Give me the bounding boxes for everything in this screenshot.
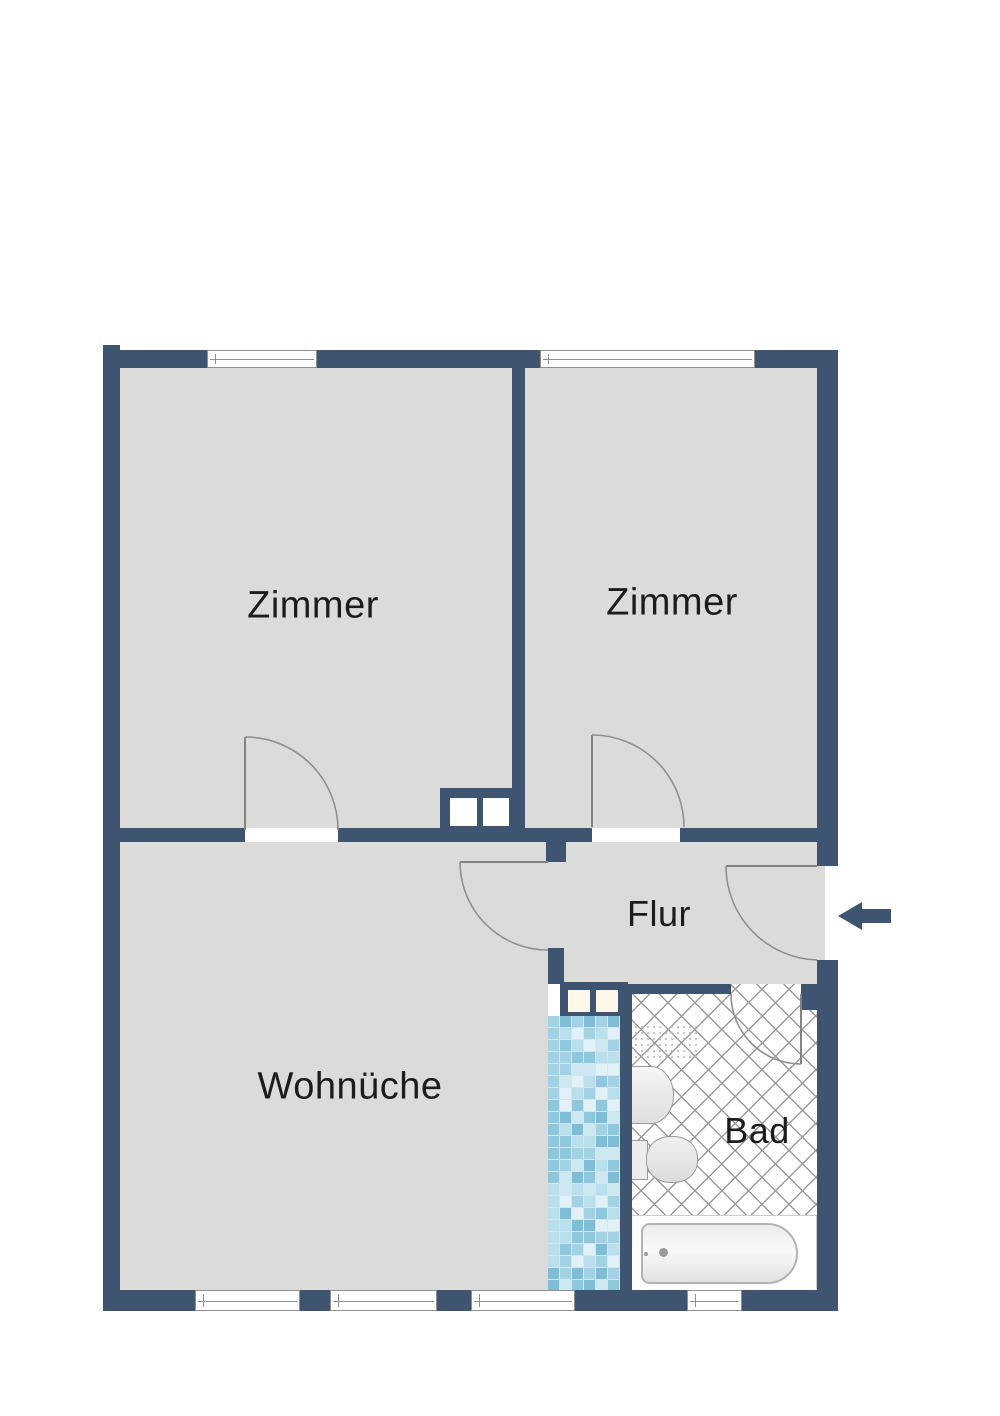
mosaic-tile <box>560 1220 571 1231</box>
wall-right <box>817 960 838 1311</box>
mosaic-tile <box>560 1136 571 1147</box>
mosaic-tile <box>608 1208 619 1219</box>
mosaic-tile <box>548 1280 559 1290</box>
mosaic-tile <box>596 1268 607 1279</box>
mosaic-tile <box>572 1268 583 1279</box>
room-label-bad: Bad <box>724 1110 790 1152</box>
mosaic-tile <box>572 1184 583 1195</box>
mosaic-tile <box>584 1208 595 1219</box>
toilet-bowl <box>646 1136 698 1183</box>
wall-main-horizontal <box>338 828 592 842</box>
mosaic-tile <box>608 1184 619 1195</box>
mosaic-tile <box>596 1112 607 1123</box>
wall-main-horizontal <box>120 828 245 842</box>
mosaic-tile <box>548 1220 559 1231</box>
wall-top <box>103 350 207 368</box>
mosaic-tile <box>548 1064 559 1075</box>
wall-bottom <box>300 1290 330 1311</box>
mosaic-tile <box>560 1028 571 1039</box>
mosaic-tile <box>596 1160 607 1171</box>
mosaic-tile <box>608 1268 619 1279</box>
mosaic-tile <box>560 1148 571 1159</box>
mosaic-tile <box>572 1256 583 1267</box>
mosaic-tile <box>608 1160 619 1171</box>
mosaic-tile <box>596 1028 607 1039</box>
entrance-threshold <box>817 866 825 960</box>
mosaic-tile <box>596 1148 607 1159</box>
mosaic-tile <box>608 1148 619 1159</box>
mosaic-tile <box>548 1040 559 1051</box>
mosaic-tile <box>596 1196 607 1207</box>
mosaic-tile <box>548 1016 559 1027</box>
room-label-flur: Flur <box>627 893 691 935</box>
mosaic-tile <box>596 1076 607 1087</box>
mosaic-tile <box>548 1172 559 1183</box>
mosaic-tile <box>572 1136 583 1147</box>
mosaic-tile <box>608 1028 619 1039</box>
mosaic-tile <box>584 1088 595 1099</box>
mosaic-tile <box>584 1196 595 1207</box>
mosaic-tile <box>560 1052 571 1063</box>
wall-bottom <box>437 1290 471 1311</box>
mosaic-tile <box>548 1268 559 1279</box>
mosaic-tile <box>584 1076 595 1087</box>
mosaic-tile <box>560 1232 571 1243</box>
mosaic-tile <box>572 1028 583 1039</box>
mosaic-tile <box>572 1016 583 1027</box>
mosaic-tile <box>596 1040 607 1051</box>
mosaic-tile <box>608 1088 619 1099</box>
mosaic-tile <box>584 1160 595 1171</box>
mosaic-tile <box>560 1268 571 1279</box>
mosaic-tile <box>560 1280 571 1290</box>
mosaic-tile <box>560 1244 571 1255</box>
mosaic-tile <box>572 1100 583 1111</box>
bathtub-drain <box>644 1252 648 1256</box>
mosaic-tile <box>596 1208 607 1219</box>
mosaic-tile <box>584 1040 595 1051</box>
mosaic-tile <box>560 1016 571 1027</box>
mosaic-tile <box>608 1064 619 1075</box>
mosaic-tile <box>548 1160 559 1171</box>
mosaic-tile <box>548 1124 559 1135</box>
mosaic-tile <box>608 1040 619 1051</box>
wall-flur-stub <box>546 842 566 862</box>
mosaic-tile <box>560 1124 571 1135</box>
mosaic-tile <box>560 1076 571 1087</box>
mosaic-tile <box>596 1136 607 1147</box>
mosaic-tile <box>596 1256 607 1267</box>
mosaic-tile <box>560 1112 571 1123</box>
mosaic-tile <box>548 1136 559 1147</box>
mosaic-tile <box>608 1232 619 1243</box>
mosaic-tile <box>608 1280 619 1290</box>
room-label-zimmer-left: Zimmer <box>247 585 379 628</box>
mosaic-tile <box>596 1064 607 1075</box>
mosaic-tile <box>548 1208 559 1219</box>
mosaic-tile <box>548 1076 559 1087</box>
mosaic-tile <box>584 1172 595 1183</box>
mosaic-tile <box>548 1184 559 1195</box>
mosaic-tile <box>572 1160 583 1171</box>
bathtub-faucet <box>659 1248 668 1257</box>
wall-bottom <box>575 1290 687 1311</box>
mosaic-tile <box>584 1028 595 1039</box>
mosaic-tile <box>608 1172 619 1183</box>
mosaic-tile <box>608 1052 619 1063</box>
window <box>471 1290 575 1311</box>
room-label-wohnkueche: Wohnüche <box>258 1066 443 1109</box>
mosaic-tile <box>608 1244 619 1255</box>
mosaic-tile <box>572 1040 583 1051</box>
wall-bottom <box>742 1290 838 1311</box>
mosaic-tiles <box>548 1016 620 1290</box>
mosaic-tile <box>596 1088 607 1099</box>
mosaic-tile <box>596 1220 607 1231</box>
mosaic-tile <box>584 1064 595 1075</box>
mosaic-tile <box>572 1148 583 1159</box>
mosaic-tile <box>572 1208 583 1219</box>
wall-between-zimmer <box>512 368 525 842</box>
mosaic-tile <box>572 1124 583 1135</box>
window <box>540 350 755 368</box>
mosaic-tile <box>572 1196 583 1207</box>
wall-right <box>817 350 838 866</box>
window <box>687 1290 742 1311</box>
mosaic-tile <box>560 1172 571 1183</box>
wall-bad-door-stub <box>801 984 817 1010</box>
mosaic-tile <box>584 1100 595 1111</box>
mosaic-tile <box>572 1064 583 1075</box>
mosaic-tile <box>548 1028 559 1039</box>
mosaic-tile <box>596 1244 607 1255</box>
wall-bottom <box>103 1290 195 1311</box>
mosaic-tile <box>572 1076 583 1087</box>
mosaic-tile <box>560 1256 571 1267</box>
mosaic-tile <box>548 1148 559 1159</box>
window <box>207 350 317 368</box>
mosaic-tile <box>584 1148 595 1159</box>
wall-flur-left <box>548 948 564 984</box>
mosaic-tile <box>572 1220 583 1231</box>
mosaic-tile <box>608 1256 619 1267</box>
wall-left <box>103 345 120 1311</box>
wall-main-horizontal <box>680 828 817 842</box>
mosaic-tile <box>572 1088 583 1099</box>
mosaic-tile <box>584 1016 595 1027</box>
mosaic-tile <box>572 1052 583 1063</box>
window <box>330 1290 437 1311</box>
wall-bad-left <box>620 994 632 1290</box>
mosaic-tile <box>596 1184 607 1195</box>
mosaic-tile <box>560 1040 571 1051</box>
bad-texture-patch <box>633 1024 699 1062</box>
mosaic-tile <box>548 1100 559 1111</box>
mosaic-tile <box>560 1208 571 1219</box>
mosaic-tile <box>548 1052 559 1063</box>
mosaic-tile <box>584 1244 595 1255</box>
mosaic-tile <box>608 1016 619 1027</box>
mosaic-tile <box>548 1244 559 1255</box>
mosaic-tile <box>608 1220 619 1231</box>
mosaic-tile <box>560 1196 571 1207</box>
mosaic-tile <box>560 1100 571 1111</box>
window <box>195 1290 300 1311</box>
mosaic-tile <box>548 1232 559 1243</box>
mosaic-tile <box>548 1196 559 1207</box>
mosaic-tile <box>548 1256 559 1267</box>
mosaic-tile <box>560 1064 571 1075</box>
mosaic-tile <box>584 1124 595 1135</box>
mosaic-tile <box>596 1016 607 1027</box>
mosaic-tile <box>596 1124 607 1135</box>
mosaic-tile <box>584 1256 595 1267</box>
wall-flur-bad <box>628 984 731 994</box>
shaft-lower-cell <box>568 990 590 1012</box>
mosaic-tile <box>548 1112 559 1123</box>
mosaic-tile <box>596 1172 607 1183</box>
shaft-upper-cell <box>483 798 509 826</box>
mosaic-tile <box>572 1232 583 1243</box>
mosaic-tile <box>560 1088 571 1099</box>
mosaic-tile <box>608 1124 619 1135</box>
mosaic-tile <box>572 1112 583 1123</box>
mosaic-tile <box>608 1076 619 1087</box>
mosaic-tile <box>584 1136 595 1147</box>
bathtub <box>630 1215 817 1292</box>
mosaic-tile <box>572 1244 583 1255</box>
room-label-zimmer-right: Zimmer <box>606 582 738 625</box>
mosaic-tile <box>608 1100 619 1111</box>
mosaic-tile <box>584 1232 595 1243</box>
mosaic-tile <box>572 1172 583 1183</box>
mosaic-tile <box>584 1112 595 1123</box>
mosaic-tile <box>584 1052 595 1063</box>
mosaic-tile <box>608 1136 619 1147</box>
entrance-arrow-icon <box>838 902 891 930</box>
floor-plan: Zimmer Zimmer Flur Wohnüche Bad <box>0 0 1000 1416</box>
shaft-lower-cell <box>596 990 618 1012</box>
mosaic-tile <box>584 1280 595 1290</box>
mosaic-tile <box>608 1196 619 1207</box>
mosaic-tile <box>572 1280 583 1290</box>
mosaic-tile <box>608 1112 619 1123</box>
mosaic-tile <box>596 1232 607 1243</box>
mosaic-tile <box>560 1160 571 1171</box>
mosaic-tile <box>560 1184 571 1195</box>
mosaic-tile <box>596 1280 607 1290</box>
mosaic-tile <box>584 1220 595 1231</box>
wall-top <box>317 350 540 368</box>
shaft-upper-cell <box>450 798 477 826</box>
mosaic-tile <box>584 1268 595 1279</box>
mosaic-tile <box>584 1184 595 1195</box>
mosaic-tile <box>596 1100 607 1111</box>
mosaic-tile <box>548 1088 559 1099</box>
mosaic-tile <box>596 1052 607 1063</box>
